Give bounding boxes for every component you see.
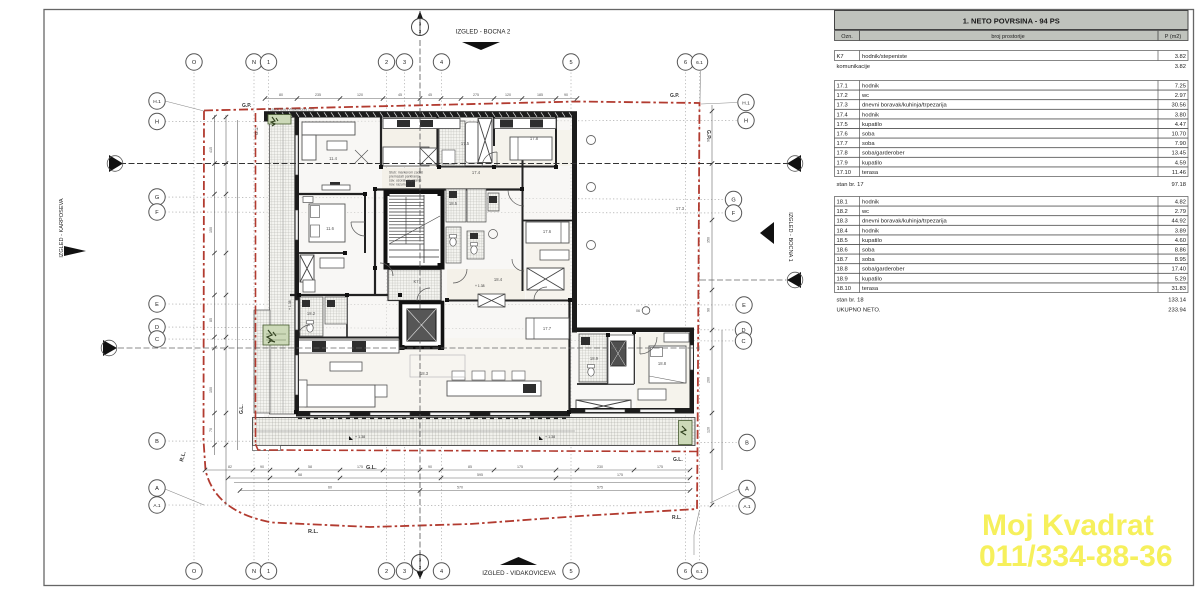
svg-text:2: 2: [385, 569, 388, 575]
svg-text:17.10: 17.10: [837, 170, 852, 176]
svg-text:G.L.: G.L.: [673, 457, 683, 463]
svg-text:F: F: [732, 211, 736, 217]
svg-text:dnevni boravak/kuhinja/trpezar: dnevni boravak/kuhinja/trpezarija: [862, 219, 948, 225]
svg-text:H: H: [155, 119, 159, 125]
svg-text:17.3: 17.3: [676, 206, 685, 211]
svg-text:17.3: 17.3: [837, 103, 848, 109]
svg-text:O: O: [192, 569, 197, 575]
svg-text:hodnik: hodnik: [862, 200, 879, 206]
svg-text:17.40: 17.40: [1171, 267, 1186, 273]
svg-text:4: 4: [440, 60, 443, 66]
svg-text:terasa: terasa: [862, 170, 879, 176]
svg-text:31.83: 31.83: [1171, 286, 1186, 292]
svg-text:17.5: 17.5: [837, 122, 848, 128]
svg-text:4.47: 4.47: [1175, 122, 1186, 128]
svg-text:6: 6: [684, 60, 687, 66]
svg-text:7.25: 7.25: [1175, 84, 1186, 90]
svg-text:3.82: 3.82: [1175, 54, 1186, 60]
svg-text:2.97: 2.97: [1175, 93, 1186, 99]
svg-text:soba: soba: [862, 141, 875, 147]
svg-text:broj prostorije: broj prostorije: [991, 34, 1024, 40]
svg-text:K7: K7: [413, 279, 419, 284]
svg-text:G.1.: G.1.: [254, 126, 259, 135]
svg-text:dnevni boravak/kuhinja/trpezar: dnevni boravak/kuhinja/trpezarija: [862, 103, 948, 109]
svg-text:G: G: [731, 197, 735, 203]
svg-text:A: A: [745, 486, 749, 492]
svg-text:58: 58: [308, 465, 312, 469]
svg-text:6: 6: [684, 569, 687, 575]
svg-text:kupatilo: kupatilo: [862, 122, 882, 128]
svg-text:Pesacki Ulaz (Vidakoviceva 17b: Pesacki Ulaz (Vidakoviceva 17b): [268, 108, 314, 112]
svg-text:G: G: [155, 195, 159, 201]
svg-text:45: 45: [398, 93, 402, 97]
svg-text:R.L.: R.L.: [308, 529, 319, 535]
svg-text:3.80: 3.80: [1175, 112, 1186, 118]
svg-text:E: E: [742, 303, 746, 309]
svg-text:soba: soba: [862, 257, 875, 263]
svg-text:17.9: 17.9: [837, 160, 848, 166]
svg-text:soba/garderober: soba/garderober: [862, 267, 905, 273]
svg-text:A.1: A.1: [743, 504, 751, 510]
svg-text:150: 150: [209, 227, 213, 233]
svg-text:120: 120: [357, 93, 363, 97]
svg-text:18.5: 18.5: [449, 201, 458, 206]
svg-text:B: B: [155, 439, 159, 445]
svg-text:18.1: 18.1: [837, 200, 848, 206]
svg-text:595: 595: [477, 473, 483, 477]
svg-text:A.1: A.1: [153, 503, 161, 509]
svg-text:stan br. 18: stan br. 18: [837, 298, 864, 304]
svg-text:18.4: 18.4: [494, 277, 503, 282]
svg-text:235: 235: [315, 93, 321, 97]
svg-text:10.70: 10.70: [1171, 132, 1186, 138]
svg-text:11.4: 11.4: [329, 156, 338, 161]
svg-text:133.14: 133.14: [1168, 298, 1187, 304]
svg-text:17.5: 17.5: [461, 141, 470, 146]
svg-text:5.29: 5.29: [1175, 276, 1186, 282]
svg-text:275: 275: [473, 93, 479, 97]
svg-text:soba/garderober: soba/garderober: [862, 151, 905, 157]
svg-text:18.9: 18.9: [590, 356, 599, 361]
svg-text:wc: wc: [861, 93, 869, 99]
svg-text:IZGLED - BOCNA 2: IZGLED - BOCNA 2: [456, 29, 511, 36]
svg-text:3.89: 3.89: [1175, 228, 1186, 234]
svg-text:175: 175: [517, 465, 523, 469]
svg-text:terasa: terasa: [862, 286, 879, 292]
svg-text:H.1: H.1: [153, 99, 161, 105]
svg-text:90: 90: [564, 93, 568, 97]
svg-text:90: 90: [260, 465, 264, 469]
svg-text:E: E: [155, 302, 159, 308]
svg-text:K7: K7: [837, 54, 844, 60]
svg-text:3: 3: [403, 569, 406, 575]
svg-text:G.P.: G.P.: [670, 93, 680, 99]
svg-text:80: 80: [279, 93, 283, 97]
svg-text:3.82: 3.82: [1175, 64, 1186, 70]
svg-text:N: N: [252, 60, 256, 66]
svg-text:13.45: 13.45: [1171, 151, 1186, 157]
svg-text:Ozn.: Ozn.: [841, 34, 853, 40]
svg-text:30.56: 30.56: [1171, 103, 1186, 109]
svg-text:06: 06: [636, 309, 640, 313]
svg-text:2.79: 2.79: [1175, 209, 1186, 215]
svg-text:nov. razum.: nov. razum.: [389, 183, 407, 187]
svg-text:1: 1: [267, 569, 270, 575]
svg-text:17.6: 17.6: [543, 229, 552, 234]
svg-text:17.4: 17.4: [472, 170, 481, 175]
svg-text:soba: soba: [862, 248, 875, 254]
svg-text:G.L.: G.L.: [239, 404, 245, 414]
svg-text:B: B: [745, 440, 749, 446]
svg-text:stan br. 17: stan br. 17: [837, 182, 864, 188]
svg-text:18.8: 18.8: [837, 267, 848, 273]
svg-text:17.8: 17.8: [530, 136, 539, 141]
svg-text:H: H: [744, 118, 748, 124]
svg-text:82: 82: [228, 465, 232, 469]
svg-text:5: 5: [569, 60, 572, 66]
svg-text:C: C: [155, 337, 159, 343]
svg-text:2: 2: [385, 60, 388, 66]
svg-text:1. NETO POVRSINA - 94 PS: 1. NETO POVRSINA - 94 PS: [963, 17, 1060, 26]
svg-text:18.7: 18.7: [837, 257, 848, 263]
svg-text:18.9: 18.9: [837, 276, 848, 282]
svg-text:011/334-88-36: 011/334-88-36: [979, 540, 1173, 573]
svg-text:17.2: 17.2: [837, 93, 848, 99]
svg-text:44.92: 44.92: [1171, 219, 1186, 225]
svg-text:18.3: 18.3: [420, 371, 429, 376]
svg-text:7.90: 7.90: [1175, 141, 1186, 147]
svg-text:230: 230: [597, 465, 603, 469]
svg-text:D: D: [155, 325, 159, 331]
svg-text:1: 1: [267, 60, 270, 66]
svg-text:175: 175: [357, 465, 363, 469]
svg-text:4: 4: [440, 569, 443, 575]
svg-text:G.P.: G.P.: [242, 103, 252, 109]
svg-text:UKUPNO NETO.: UKUPNO NETO.: [837, 308, 881, 314]
svg-text:3: 3: [403, 60, 406, 66]
svg-text:570: 570: [457, 486, 463, 490]
svg-text:260: 260: [707, 377, 711, 383]
svg-text:17.6: 17.6: [837, 132, 848, 138]
svg-text:kupatilo: kupatilo: [862, 238, 882, 244]
svg-text:18.8: 18.8: [658, 361, 667, 366]
svg-text:17.7: 17.7: [543, 326, 552, 331]
svg-text:A: A: [155, 486, 159, 492]
svg-text:18.2: 18.2: [307, 311, 316, 316]
svg-text:60: 60: [328, 486, 332, 490]
svg-text:18.2: 18.2: [837, 209, 848, 215]
svg-text:90: 90: [428, 465, 432, 469]
svg-text:150: 150: [209, 387, 213, 393]
svg-text:18.6: 18.6: [837, 248, 848, 254]
svg-text:175: 175: [617, 473, 623, 477]
svg-text:+ 1.38: + 1.38: [475, 284, 485, 288]
svg-text:85: 85: [209, 318, 213, 322]
svg-text:97.18: 97.18: [1171, 182, 1186, 188]
svg-text:F: F: [155, 210, 159, 216]
svg-text:85: 85: [468, 465, 472, 469]
svg-text:N: N: [252, 569, 256, 575]
svg-text:4.59: 4.59: [1175, 160, 1186, 166]
svg-text:90: 90: [707, 308, 711, 312]
svg-text:11.46: 11.46: [1172, 170, 1186, 176]
svg-text:120: 120: [505, 93, 511, 97]
svg-text:+ 1.38: + 1.38: [288, 300, 292, 310]
svg-text:233.94: 233.94: [1168, 308, 1187, 314]
svg-text:6.1: 6.1: [696, 569, 703, 575]
svg-text:hodnik/stepeniste: hodnik/stepeniste: [862, 54, 907, 60]
svg-text:575: 575: [597, 486, 603, 490]
svg-text:H.1: H.1: [742, 100, 750, 106]
svg-text:8.86: 8.86: [1175, 248, 1186, 254]
svg-text:18.5: 18.5: [837, 238, 848, 244]
svg-text:415: 415: [209, 147, 213, 153]
svg-text:C: C: [741, 339, 745, 345]
svg-text:kupatilo: kupatilo: [862, 276, 882, 282]
svg-text:18.10: 18.10: [837, 286, 852, 292]
svg-text:58: 58: [298, 473, 302, 477]
svg-text:17.4: 17.4: [837, 112, 849, 118]
svg-text:90: 90: [707, 138, 711, 142]
svg-text:R.L.: R.L.: [672, 515, 682, 521]
svg-text:O: O: [192, 60, 197, 66]
svg-text:4.60: 4.60: [1175, 238, 1186, 244]
svg-text:6.1: 6.1: [696, 60, 703, 66]
svg-text:185: 185: [537, 93, 543, 97]
svg-text:komunikacije: komunikacije: [837, 64, 871, 70]
svg-text:175: 175: [657, 465, 663, 469]
svg-text:45: 45: [428, 93, 432, 97]
svg-text:hodnik: hodnik: [862, 84, 879, 90]
svg-text:IZGLED - BOCNA 1: IZGLED - BOCNA 1: [787, 212, 793, 261]
svg-text:17.7: 17.7: [837, 141, 848, 147]
svg-text:wc: wc: [861, 209, 869, 215]
svg-text:5: 5: [569, 569, 572, 575]
svg-text:8.95: 8.95: [1175, 257, 1186, 263]
svg-text:kupatilo: kupatilo: [862, 160, 882, 166]
svg-text:350: 350: [707, 237, 711, 243]
svg-text:18.4: 18.4: [837, 228, 849, 234]
svg-text:17.8: 17.8: [837, 151, 848, 157]
svg-text:18.3: 18.3: [837, 219, 848, 225]
svg-text:11.6: 11.6: [326, 226, 335, 231]
svg-text:Moj Kvadrat: Moj Kvadrat: [982, 509, 1154, 542]
svg-text:70: 70: [209, 428, 213, 432]
svg-text:+ 1.38: + 1.38: [355, 435, 365, 439]
svg-text:+ 1.38: + 1.38: [545, 435, 555, 439]
svg-text:120: 120: [707, 427, 711, 433]
svg-text:soba: soba: [862, 132, 875, 138]
svg-text:4.82: 4.82: [1175, 200, 1186, 206]
svg-text:P (m2): P (m2): [1165, 34, 1182, 40]
svg-text:IZGLED - VIDAKOVICEVA: IZGLED - VIDAKOVICEVA: [482, 570, 556, 577]
svg-text:hodnik: hodnik: [862, 228, 879, 234]
svg-text:17.1: 17.1: [837, 84, 848, 90]
svg-text:hodnik: hodnik: [862, 112, 879, 118]
